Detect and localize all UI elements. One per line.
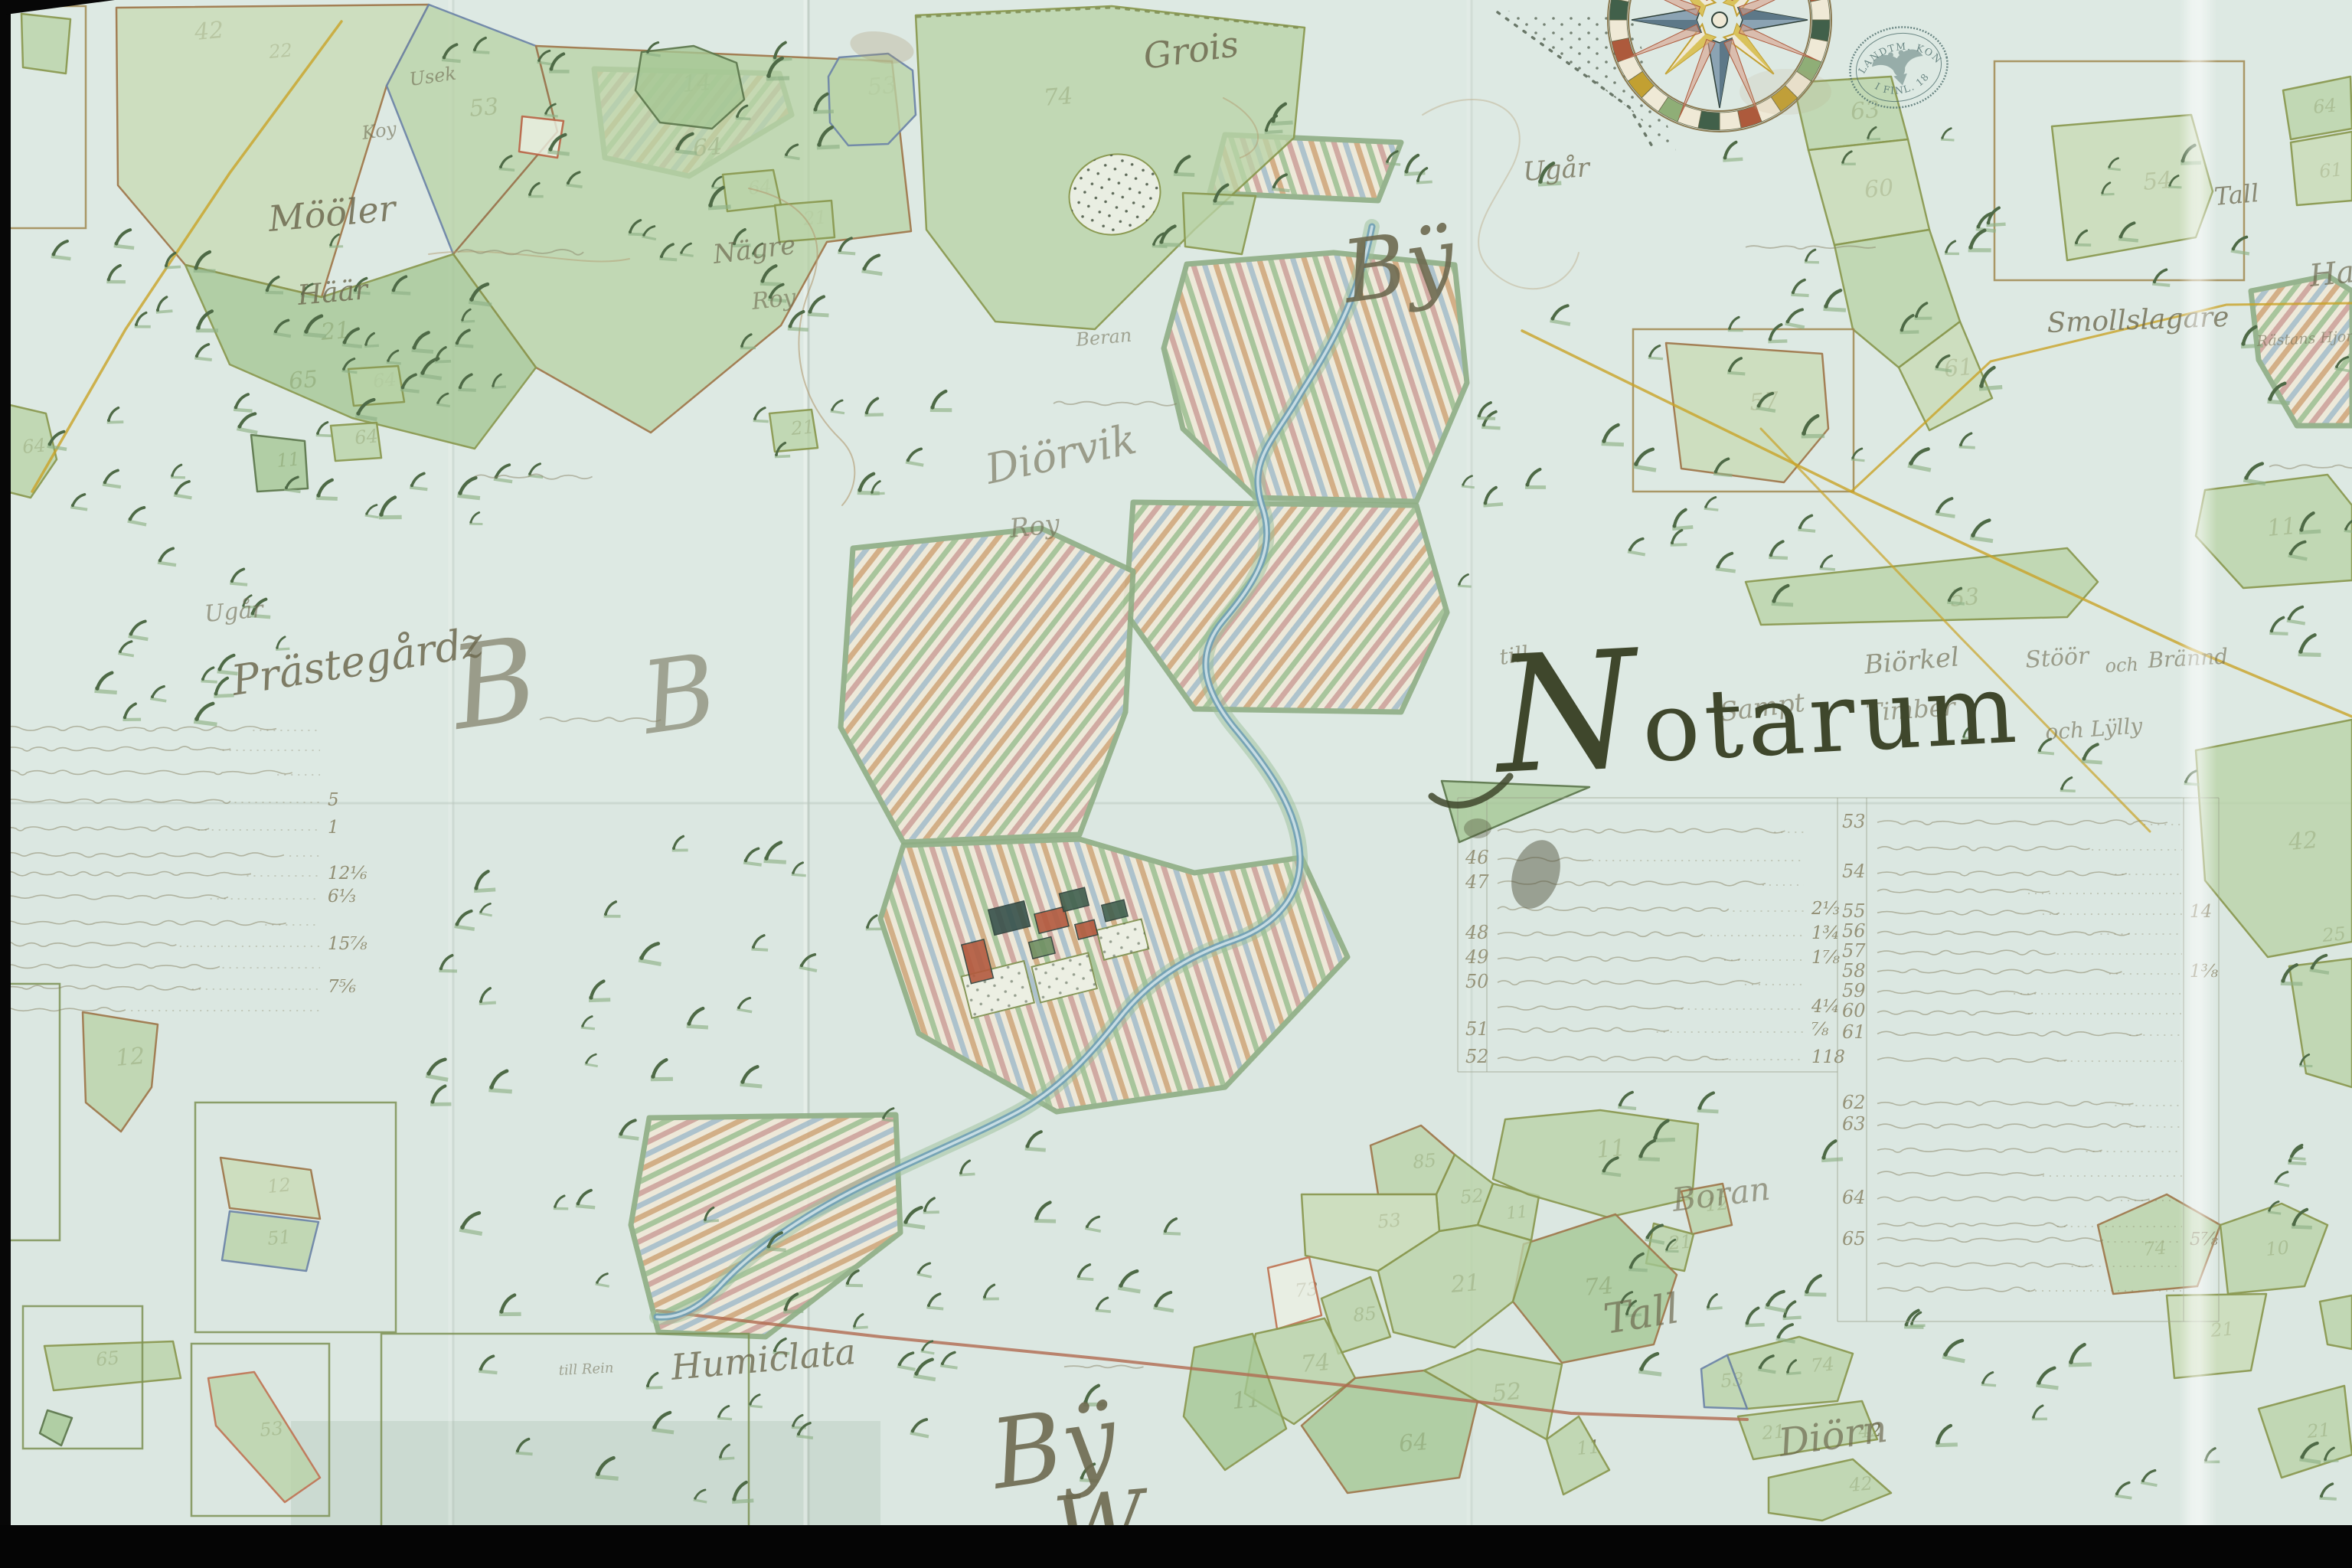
list-row-number: 64 xyxy=(1842,1187,1866,1208)
list-row-number: 56 xyxy=(1842,920,1866,942)
list-row-number: 49 xyxy=(1465,946,1489,968)
list-row-number: 48 xyxy=(1465,922,1489,943)
place-label: Häär xyxy=(296,274,371,312)
compass-ring-segment xyxy=(1609,0,1628,20)
compass-ring-segment xyxy=(1609,20,1628,41)
list-row-number: 65 xyxy=(1842,1228,1866,1249)
list-row-number: 55 xyxy=(1842,900,1866,922)
list-row-value: 15⅞ xyxy=(328,934,367,954)
place-label: Stöör xyxy=(2024,642,2091,674)
strip-field xyxy=(1125,502,1447,712)
list-row-value: 118 xyxy=(1811,1047,1845,1067)
place-label: Ugår xyxy=(1522,152,1592,188)
list-row-number: 57 xyxy=(1842,940,1866,962)
list-row-value: ⅞ xyxy=(1811,1020,1829,1040)
list-row-value: 1¾ xyxy=(1811,923,1840,943)
list-row-number: 47 xyxy=(1465,871,1489,893)
compass-ring-segment xyxy=(1698,111,1720,130)
parcel xyxy=(251,435,308,492)
place-label: och xyxy=(2105,654,2139,677)
list-row-number: 54 xyxy=(1842,861,1866,882)
scanned-map-photo: 4222536421651453746421216464116463606154… xyxy=(0,0,2352,1568)
list-row-number: 53 xyxy=(1842,811,1866,832)
list-row-number: 61 xyxy=(1842,1021,1866,1043)
bright-fold-band xyxy=(2179,0,2217,1568)
list-row-value: 12⅙ xyxy=(328,864,367,884)
list-row-value: 6⅓ xyxy=(328,887,356,906)
list-row-number: 50 xyxy=(1465,971,1489,992)
place-label: Tall xyxy=(2213,178,2259,211)
place-label: Roy xyxy=(750,284,798,315)
list-row-value: 5 xyxy=(328,790,339,810)
parcel xyxy=(331,423,381,461)
strip-field xyxy=(841,528,1133,842)
paper-shadow xyxy=(291,1421,880,1525)
list-row-number: 63 xyxy=(1842,1113,1866,1135)
parcel xyxy=(769,410,818,452)
place-label: Ugår xyxy=(204,596,266,628)
compass-ring-segment xyxy=(1811,0,1830,20)
list-row-number: 60 xyxy=(1842,1000,1866,1021)
list-row-number: 62 xyxy=(1842,1092,1866,1113)
list-row-value: 4¼ xyxy=(1811,997,1840,1017)
list-row-number: 51 xyxy=(1465,1018,1489,1040)
parcel xyxy=(2291,132,2352,205)
parcel xyxy=(222,1211,318,1271)
ink-stain xyxy=(1464,818,1491,838)
list-row-number: 58 xyxy=(1842,960,1866,982)
place-label: Bÿ xyxy=(1335,209,1462,324)
parcel xyxy=(723,170,781,211)
list-row-value: 2⅓ xyxy=(1811,899,1840,919)
parcel xyxy=(21,14,70,73)
list-row-value: 1 xyxy=(328,818,339,838)
ink-stain xyxy=(1739,69,1831,115)
place-label: Roy xyxy=(1008,508,1062,544)
map-canvas: 4222536421651453746421216464116463606154… xyxy=(0,0,2352,1568)
film-border-left xyxy=(0,0,11,1568)
place-label: till Rein xyxy=(558,1360,614,1379)
list-row-value: 1⅞ xyxy=(1811,948,1841,968)
list-row-value: 7⅚ xyxy=(328,977,356,997)
list-row-number: 52 xyxy=(1465,1046,1489,1067)
film-border-bottom xyxy=(0,1525,2352,1568)
list-row-number: 46 xyxy=(1465,847,1489,868)
compass-ring-segment xyxy=(1720,111,1741,130)
compass-ring-segment xyxy=(1811,20,1830,41)
list-row-number: 59 xyxy=(1842,980,1866,1001)
